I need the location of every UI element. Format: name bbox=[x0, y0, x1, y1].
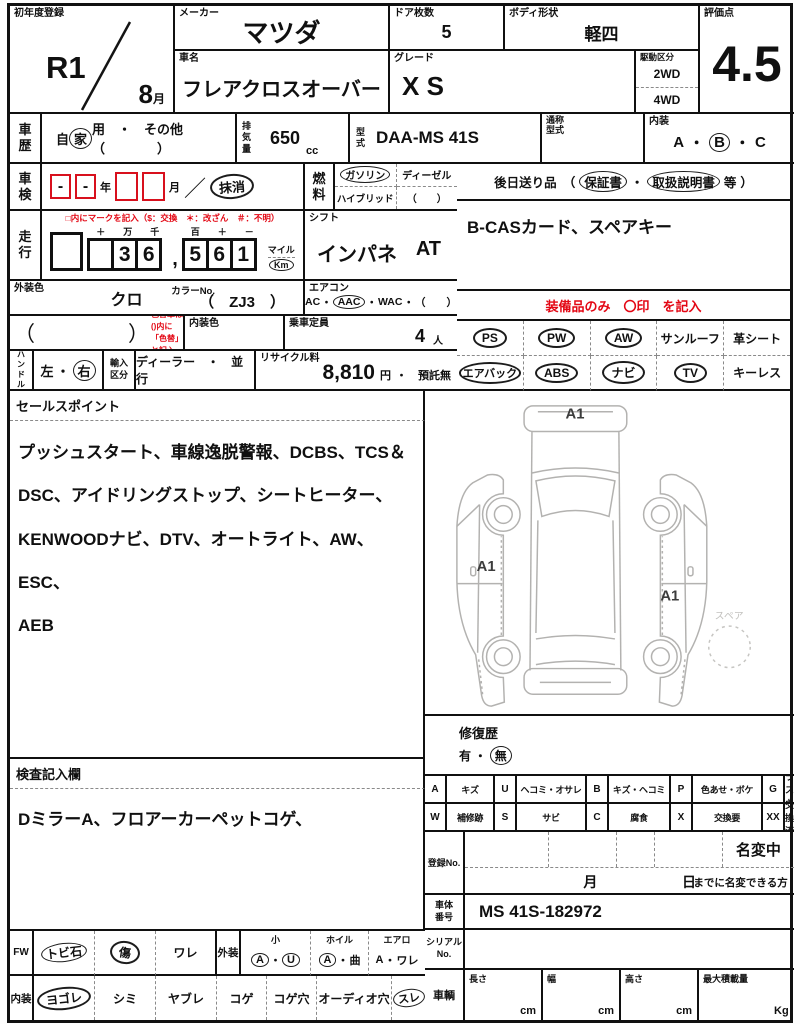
interior-defects-row: 内装 ヨゴレ シミ ヤブレ コゲ コゲ穴 オーディオ穴 スレ bbox=[10, 976, 425, 1020]
shaken-label-cell: 車検 bbox=[10, 164, 42, 211]
damage-mark-a1-left: A1 bbox=[476, 559, 495, 575]
fw-exterior-row: FW トビ石 傷 ワレ 外装 小 A・U ホイル A・曲 エアロ A・ワレ bbox=[10, 931, 425, 976]
maker-carname-column: メーカー マツダ 車名 フレアクロスオーバー bbox=[175, 6, 390, 114]
name-change-note: までに名変できる方 bbox=[693, 875, 787, 890]
handle-value-cell: 左 ・ 右 bbox=[34, 351, 104, 391]
fuel-diesel: ディーゼル bbox=[397, 164, 458, 187]
body-shape-value: 軽四 bbox=[585, 20, 619, 45]
send-later-pre: 後日送り品 （ bbox=[494, 172, 575, 191]
lower-right-column: A1 A1 A1 スペア 修復歴 有 ・ 無 Aキズ Uヘコミ・ bbox=[425, 391, 794, 1020]
send-later-etc: 等 bbox=[724, 172, 737, 191]
lower-left-column: セールスポイント プッシュスタート、車線逸脱警報、DCBS、TCS＆ DSC、ア… bbox=[10, 391, 425, 1020]
int-dirt-circled: ヨゴレ bbox=[36, 984, 92, 1013]
small-a-circled: A bbox=[251, 953, 269, 967]
int-scuff-circled: スレ bbox=[392, 987, 425, 1009]
header-band: 初年度登録 R1 8月 メーカー マツダ 車名 フレアクロスオーバー ドア枚数 … bbox=[10, 6, 790, 114]
fuel-gasoline: ガソリン bbox=[335, 164, 397, 187]
equip-navi-circled: ナビ bbox=[602, 361, 644, 384]
dot-separator: ・ bbox=[403, 295, 414, 310]
chassis-label: 車体 番号 bbox=[435, 900, 453, 923]
dot-separator: ・ bbox=[366, 295, 377, 310]
car-side-view-left bbox=[457, 475, 520, 707]
spare-label: スペア bbox=[715, 611, 744, 622]
legend-key: A bbox=[425, 776, 447, 804]
car-name-value: フレアクロスオーバー bbox=[182, 73, 381, 102]
dim-max-load-label: 最大積載量 bbox=[703, 972, 748, 985]
equip-pw: PW bbox=[524, 321, 591, 356]
interior-grade-b-circled: B bbox=[709, 133, 730, 152]
equipment-row-2: エアバック ABS ナビ TV キーレス bbox=[457, 356, 790, 391]
damage-mark-a1-right: A1 bbox=[660, 588, 679, 604]
grade-cell: グレード X S bbox=[390, 51, 636, 114]
dot-separator: ・ bbox=[384, 952, 395, 968]
digit-head: 百 bbox=[182, 225, 209, 238]
interior-grade-c: C bbox=[755, 134, 766, 151]
shaken-label: 車検 bbox=[17, 171, 33, 202]
yen-unit: 円 bbox=[380, 367, 391, 385]
dim-width: 幅cm bbox=[543, 970, 621, 1020]
deregistered-stamp: 抹消 bbox=[209, 172, 255, 200]
month-unit: 月 bbox=[153, 92, 165, 106]
import-label: 輸入 区分 bbox=[110, 358, 128, 381]
dim-length: 長さcm bbox=[465, 970, 543, 1020]
aero-head: エアロ bbox=[369, 931, 425, 946]
equip-keyless: キーレス bbox=[724, 356, 790, 391]
capacity-cell: 乗車定員 4 人 bbox=[285, 316, 457, 351]
dot-separator: ・ bbox=[689, 132, 704, 153]
legend-key: G bbox=[763, 776, 785, 804]
equip-tv-circled: TV bbox=[674, 363, 707, 383]
odometer-digit: 6 bbox=[206, 238, 233, 271]
shaken-month-unit: 月 bbox=[169, 179, 180, 195]
dim-width-unit: cm bbox=[598, 1005, 614, 1017]
legend-value: 交換済 bbox=[785, 804, 794, 832]
doors-body-grade-column: ドア枚数 5 ボディ形状 軽四 グレード X S 駆動区分 2WD 4WD bbox=[390, 6, 700, 114]
equipment-note-cell: 装備品のみ 〇印 を記入 bbox=[457, 291, 790, 321]
handle-left: 左 bbox=[40, 361, 53, 380]
dot-separator: ・ bbox=[337, 952, 348, 968]
dim-height-unit: cm bbox=[676, 1005, 692, 1017]
aircon-ac: AC bbox=[305, 296, 320, 308]
digit-head: 万 bbox=[114, 225, 141, 238]
shaken-value-cell: - - 年 月 ／ 抹消 bbox=[42, 164, 305, 211]
car-name-label: 車名 bbox=[179, 53, 199, 64]
legend-value: 交換要 bbox=[693, 804, 763, 832]
repair-history-label: 修復歴 bbox=[459, 723, 498, 742]
serial-row: シリアル No. bbox=[425, 930, 794, 970]
lower-band: セールスポイント プッシュスタート、車線逸脱警報、DCBS、TCS＆ DSC、ア… bbox=[10, 391, 790, 1020]
middle-right-column: 後日送り品 （ 保証書 ・ 取扱説明書 等 ） B-CASカード、スペアキー 装… bbox=[457, 164, 790, 391]
odometer-digit: 3 bbox=[111, 238, 138, 271]
int-audio-hole: オーディオ穴 bbox=[317, 976, 392, 1020]
fw-scratch-circled: 傷 bbox=[109, 939, 142, 966]
wheel-a-circled: A bbox=[319, 953, 337, 967]
doors-value: 5 bbox=[441, 22, 451, 43]
color-change-note: 色替車は()内に 「色替」と記入 bbox=[151, 316, 183, 351]
displacement-unit: cc bbox=[306, 145, 318, 157]
dot-separator: ・ bbox=[735, 132, 750, 153]
int-tear: ヤブレ bbox=[156, 976, 217, 1020]
name-change-status: 名変中 bbox=[723, 832, 794, 867]
capacity-value: 4 bbox=[415, 326, 425, 347]
manual-circled: 取扱説明書 bbox=[647, 171, 720, 192]
drive-option-2wd: 2WD bbox=[636, 62, 698, 88]
reg-blank-1 bbox=[465, 832, 549, 867]
inspection-text: DミラーA、フロアーカーペットコゲ、 bbox=[10, 789, 425, 931]
dim-max-load-unit: Kg bbox=[774, 1005, 789, 1017]
aircon-wac: WAC bbox=[378, 296, 403, 308]
doors-label: ドア枚数 bbox=[394, 8, 434, 19]
car-diagram: A1 A1 A1 スペア bbox=[427, 392, 792, 713]
shaken-year-unit: 年 bbox=[100, 179, 111, 195]
aero-crack: ワレ bbox=[396, 952, 418, 968]
import-label-cell: 輸入 区分 bbox=[104, 351, 136, 391]
equip-airbag-circled: エアバック bbox=[459, 362, 522, 384]
sales-point-text: プッシュスタート、車線逸脱警報、DCBS、TCS＆ DSC、アイドリングストップ… bbox=[10, 421, 425, 759]
shaken-box-4 bbox=[142, 172, 165, 201]
dot-separator: ・ bbox=[56, 361, 69, 380]
interior-grade-a: A bbox=[673, 134, 684, 151]
odometer-box-lead bbox=[50, 232, 83, 271]
odometer-digit: 5 bbox=[182, 238, 209, 271]
digit-head: 千 bbox=[141, 225, 168, 238]
exterior-color-value: クロ bbox=[110, 286, 142, 310]
equip-navi: ナビ bbox=[591, 356, 658, 391]
fuel-other: （ ） bbox=[397, 187, 458, 210]
reg-month-unit: 月 bbox=[583, 872, 597, 892]
wheel-bent: 曲 bbox=[349, 952, 360, 968]
legend-value: 腐食 bbox=[609, 804, 671, 832]
model-code-value: DAA-MS 41S bbox=[376, 128, 479, 148]
capacity-label: 乗車定員 bbox=[289, 318, 329, 329]
mile-unit: マイル bbox=[268, 243, 295, 258]
legend-key: S bbox=[495, 804, 517, 832]
legend-value: キズ・ヘコミ bbox=[609, 776, 671, 804]
inspection-header: 検査記入欄 bbox=[10, 759, 425, 789]
capacity-unit: 人 bbox=[433, 332, 443, 347]
interior-color-cell: 内装色 bbox=[185, 316, 285, 351]
aircon-aac-circled: AAC bbox=[333, 295, 366, 309]
aircon-cell: エアコン AC・ AAC・ WAC・ （ ） bbox=[305, 281, 457, 316]
equip-tv: TV bbox=[657, 356, 724, 391]
equip-abs-circled: ABS bbox=[535, 363, 578, 383]
first-registration-month: 8月 bbox=[139, 79, 165, 110]
legend-key: P bbox=[671, 776, 693, 804]
aircon-label: エアコン bbox=[309, 283, 349, 294]
maker-cell: メーカー マツダ bbox=[175, 6, 390, 51]
history-pre: 自 bbox=[56, 129, 69, 148]
equipment-row-1: PS PW AW サンルーフ 革シート bbox=[457, 321, 790, 356]
dim-height: 高さcm bbox=[621, 970, 699, 1020]
dot-separator: ・ bbox=[631, 172, 644, 191]
serial-value bbox=[465, 930, 794, 970]
digit-head: － bbox=[236, 225, 263, 238]
registration-label-cell: 登録No. bbox=[425, 832, 465, 895]
legend-key: B bbox=[587, 776, 609, 804]
equip-aw: AW bbox=[591, 321, 658, 356]
small-u-circled: U bbox=[282, 953, 300, 967]
handle-right-circled: 右 bbox=[73, 360, 96, 381]
interior-label-cell: 内装 bbox=[10, 976, 34, 1020]
equip-airbag: エアバック bbox=[457, 356, 524, 391]
grade-label: グレード bbox=[394, 53, 434, 64]
chassis-value: MS 41S-182972 bbox=[465, 895, 794, 930]
chassis-row: 車体 番号 MS 41S-182972 bbox=[425, 895, 794, 930]
dim-max-load: 最大積載量Kg bbox=[699, 970, 794, 1020]
wheel-cell: ホイル A・曲 bbox=[311, 931, 369, 976]
exterior-small-cell: 小 A・U bbox=[241, 931, 311, 976]
body-shape-label: ボディ形状 bbox=[509, 8, 558, 19]
legend-key: W bbox=[425, 804, 447, 832]
warranty-book-circled: 保証書 bbox=[579, 171, 627, 192]
equip-ps-circled: PS bbox=[473, 328, 507, 348]
history-band: 車歴 自家用 ・ その他 （ ） 排気量 650 cc 型式 DAA-MS 41… bbox=[10, 114, 790, 164]
odometer-digit bbox=[87, 238, 114, 271]
mileage-label: 走行 bbox=[17, 229, 33, 260]
odometer-group-1: ＋万千 36 bbox=[87, 225, 168, 271]
exterior-small-head: 小 bbox=[241, 931, 310, 946]
mileage-label-cell: 走行 bbox=[10, 211, 42, 281]
odometer-digit: 1 bbox=[230, 238, 257, 271]
odometer-digit: 6 bbox=[135, 238, 162, 271]
first-registration-month-value: 8 bbox=[139, 79, 153, 109]
send-later-post: ） bbox=[740, 172, 753, 191]
alias-model-label: 通称 型式 bbox=[546, 116, 564, 136]
send-later-cell: 後日送り品 （ 保証書 ・ 取扱説明書 等 ） bbox=[457, 164, 790, 201]
serial-label-cell: シリアル No. bbox=[425, 930, 465, 970]
int-dirt: ヨゴレ bbox=[34, 976, 95, 1020]
exterior-label-cell: 外装 bbox=[217, 931, 241, 976]
dot-separator: ・ bbox=[270, 952, 281, 968]
legend-key: X bbox=[671, 804, 693, 832]
exterior-color-label: 外装色 bbox=[14, 283, 44, 294]
history-label-cell: 車歴 bbox=[10, 114, 42, 164]
doors-cell: ドア枚数 5 bbox=[390, 6, 505, 51]
equip-abs: ABS bbox=[524, 356, 591, 391]
damage-mark-a1-top: A1 bbox=[565, 407, 584, 423]
score-cell: 評価点 4.5 bbox=[700, 6, 794, 114]
interior-grade-cell: 内装 A ・ B ・ C bbox=[645, 114, 794, 164]
odometer-note: □内にマークを記入（$：交換 ＊：改ざん ＃：不明） bbox=[42, 212, 303, 224]
legend-key: XX bbox=[763, 804, 785, 832]
aero-cell: エアロ A・ワレ bbox=[369, 931, 425, 976]
digit-head: ＋ bbox=[87, 225, 114, 238]
int-stain: シミ bbox=[95, 976, 156, 1020]
equip-pw-circled: PW bbox=[538, 328, 575, 348]
deposit-status: ・ 預託無 bbox=[396, 367, 451, 385]
legend-value: ガラスキズ bbox=[785, 776, 794, 804]
equip-leather-seat: 革シート bbox=[724, 321, 790, 356]
auction-sheet: 初年度登録 R1 8月 メーカー マツダ 車名 フレアクロスオーバー ドア枚数 … bbox=[7, 3, 793, 1023]
car-diagram-cell: A1 A1 A1 スペア bbox=[425, 391, 794, 716]
first-registration-label: 初年度登録 bbox=[14, 8, 64, 19]
mileage-units: マイル Km bbox=[268, 243, 295, 271]
shift-label: シフト bbox=[309, 213, 339, 224]
fuel-hybrid: ハイブリッド bbox=[335, 187, 397, 210]
fuel-options-cell: ガソリン ディーゼル ハイブリッド （ ） bbox=[335, 164, 457, 211]
transmission-value: AT bbox=[416, 238, 441, 267]
model-code-cell: 型式 DAA-MS 41S bbox=[350, 114, 542, 164]
maker-value: マツダ bbox=[242, 13, 320, 50]
serial-label: シリアル No. bbox=[426, 937, 462, 960]
equip-aw-circled: AW bbox=[605, 328, 642, 348]
registration-row: 登録No. 名変中 月 日 までに名変できる方 bbox=[425, 832, 794, 895]
spare-tire-circle bbox=[709, 626, 750, 667]
maker-label: メーカー bbox=[179, 8, 219, 19]
exterior-color-cell: 外装色 クロ カラーNo. （ ZJ3 ） bbox=[10, 281, 305, 316]
drive-type-label: 駆動区分 bbox=[640, 53, 674, 62]
drive-option-4wd: 4WD bbox=[636, 88, 698, 113]
dot-separator: ・ bbox=[474, 749, 486, 763]
shift-value: インパネ bbox=[317, 238, 397, 267]
middle-band: 車検 - - 年 月 ／ 抹消 燃料 ガソリン ディーゼル bbox=[10, 164, 790, 391]
dim-width-label: 幅 bbox=[547, 972, 556, 985]
fuel-label-cell: 燃料 bbox=[305, 164, 335, 211]
shift-cell: シフト インパネ AT bbox=[305, 211, 457, 281]
displacement-value: 650 bbox=[270, 128, 300, 149]
sales-point-header: セールスポイント bbox=[10, 391, 425, 421]
int-burn-hole: コゲ穴 bbox=[267, 976, 317, 1020]
legend-row-2: W補修跡 Sサビ C腐食 X交換要 XX交換済 bbox=[425, 804, 794, 832]
reg-blank-3 bbox=[617, 832, 655, 867]
middle-left-column: 車検 - - 年 月 ／ 抹消 燃料 ガソリン ディーゼル bbox=[10, 164, 457, 391]
vehicle-dims-row: 車輌 長さcm 幅cm 高さcm 最大積載量Kg bbox=[425, 970, 794, 1020]
color-change-paren: （ ） bbox=[14, 318, 147, 348]
fuel-label: 燃料 bbox=[311, 171, 327, 202]
recycle-fee-label: リサイクル料 bbox=[260, 353, 320, 364]
aero-a: A bbox=[376, 954, 384, 966]
legend-value: キズ bbox=[447, 776, 495, 804]
interior-grade-label: 内装 bbox=[649, 116, 669, 127]
body-shape-cell: ボディ形状 軽四 bbox=[505, 6, 700, 51]
color-change-cell: （ ） 色替車は()内に 「色替」と記入 bbox=[10, 316, 185, 351]
fw-stone-chip-circled: トビ石 bbox=[40, 941, 88, 965]
shaken-box-3 bbox=[115, 172, 138, 201]
chassis-label-cell: 車体 番号 bbox=[425, 895, 465, 930]
fw-crack: ワレ bbox=[156, 931, 217, 976]
equip-ps: PS bbox=[457, 321, 524, 356]
odometer-group-2: 百＋－ 561 bbox=[182, 225, 263, 271]
odometer-cell: □内にマークを記入（$：交換 ＊：改ざん ＃：不明） ＋万千 36 , 百＋－ … bbox=[42, 211, 305, 281]
vehicle-label-cell: 車輌 bbox=[425, 970, 465, 1020]
aircon-other: （ ） bbox=[415, 295, 457, 310]
history-value-cell: 自家用 ・ その他 （ ） bbox=[42, 114, 237, 164]
legend-value: 色あせ・ボケ bbox=[693, 776, 763, 804]
registration-content: 名変中 月 日 までに名変できる方 bbox=[465, 832, 794, 895]
displacement-label: 排気量 bbox=[241, 121, 252, 155]
legend-value: 補修跡 bbox=[447, 804, 495, 832]
score-label: 評価点 bbox=[704, 8, 734, 19]
digit-head: ＋ bbox=[209, 225, 236, 238]
first-registration-year: R1 bbox=[46, 50, 86, 86]
fuel-gasoline-circled: ガソリン bbox=[340, 166, 390, 183]
car-top-view bbox=[524, 406, 627, 694]
recycle-fee-cell: リサイクル料 8,810 円 ・ 預託無 bbox=[256, 351, 457, 391]
dot-separator: ・ bbox=[321, 295, 332, 310]
reg-blank-4 bbox=[655, 832, 723, 867]
repair-yes: 有 bbox=[459, 749, 471, 763]
color-no-value: （ ZJ3 ） bbox=[199, 291, 285, 312]
legend-key: C bbox=[587, 804, 609, 832]
legend-key: U bbox=[495, 776, 517, 804]
repair-no-circled: 無 bbox=[490, 746, 512, 765]
repair-history-cell: 修復歴 有 ・ 無 bbox=[425, 716, 794, 776]
wheel-head: ホイル bbox=[311, 931, 368, 946]
int-burn: コゲ bbox=[217, 976, 267, 1020]
shaken-slash: ／ bbox=[184, 171, 206, 203]
shaken-box-2: - bbox=[75, 174, 96, 199]
dim-length-label: 長さ bbox=[469, 972, 487, 985]
displacement-cell: 排気量 650 cc bbox=[237, 114, 350, 164]
history-label: 車歴 bbox=[17, 122, 33, 153]
history-post: 用 ・ その他 （ ） bbox=[92, 119, 235, 157]
accessories-cell: B-CASカード、スペアキー bbox=[457, 201, 790, 291]
model-code-label: 型式 bbox=[355, 127, 366, 150]
recycle-fee-value: 8,810 bbox=[322, 361, 375, 385]
handle-label: ハンドル bbox=[16, 351, 27, 390]
car-name-cell: 車名 フレアクロスオーバー bbox=[175, 51, 390, 114]
first-registration-cell: 初年度登録 R1 8月 bbox=[10, 6, 175, 114]
history-circled-mark: 家 bbox=[69, 128, 92, 149]
legend-value: ヘコミ・オサレ bbox=[517, 776, 587, 804]
km-unit-circled: Km bbox=[269, 259, 294, 271]
int-scuff: スレ bbox=[392, 976, 425, 1020]
reg-blank-2 bbox=[549, 832, 617, 867]
legend-row-1: Aキズ Uヘコミ・オサレ Bキズ・ヘコミ P色あせ・ボケ Gガラスキズ bbox=[425, 776, 794, 804]
fw-label-cell: FW bbox=[10, 931, 34, 976]
handle-label-cell: ハンドル bbox=[10, 351, 34, 391]
score-value: 4.5 bbox=[712, 35, 782, 93]
dim-height-label: 高さ bbox=[625, 972, 643, 985]
legend-value: サビ bbox=[517, 804, 587, 832]
odometer-comma: , bbox=[172, 248, 178, 271]
shaken-box-1: - bbox=[50, 174, 71, 199]
dim-length-unit: cm bbox=[520, 1005, 536, 1017]
import-value-cell: ディーラー ・ 並行 bbox=[136, 351, 256, 391]
fw-stone-chip: トビ石 bbox=[34, 931, 95, 976]
interior-color-label: 内装色 bbox=[189, 318, 219, 329]
grade-value: X S bbox=[390, 71, 444, 102]
alias-model-cell: 通称 型式 bbox=[542, 114, 645, 164]
drive-type-cell: 駆動区分 2WD 4WD bbox=[636, 51, 700, 114]
fw-scratch: 傷 bbox=[95, 931, 156, 976]
equip-sunroof: サンルーフ bbox=[657, 321, 724, 356]
